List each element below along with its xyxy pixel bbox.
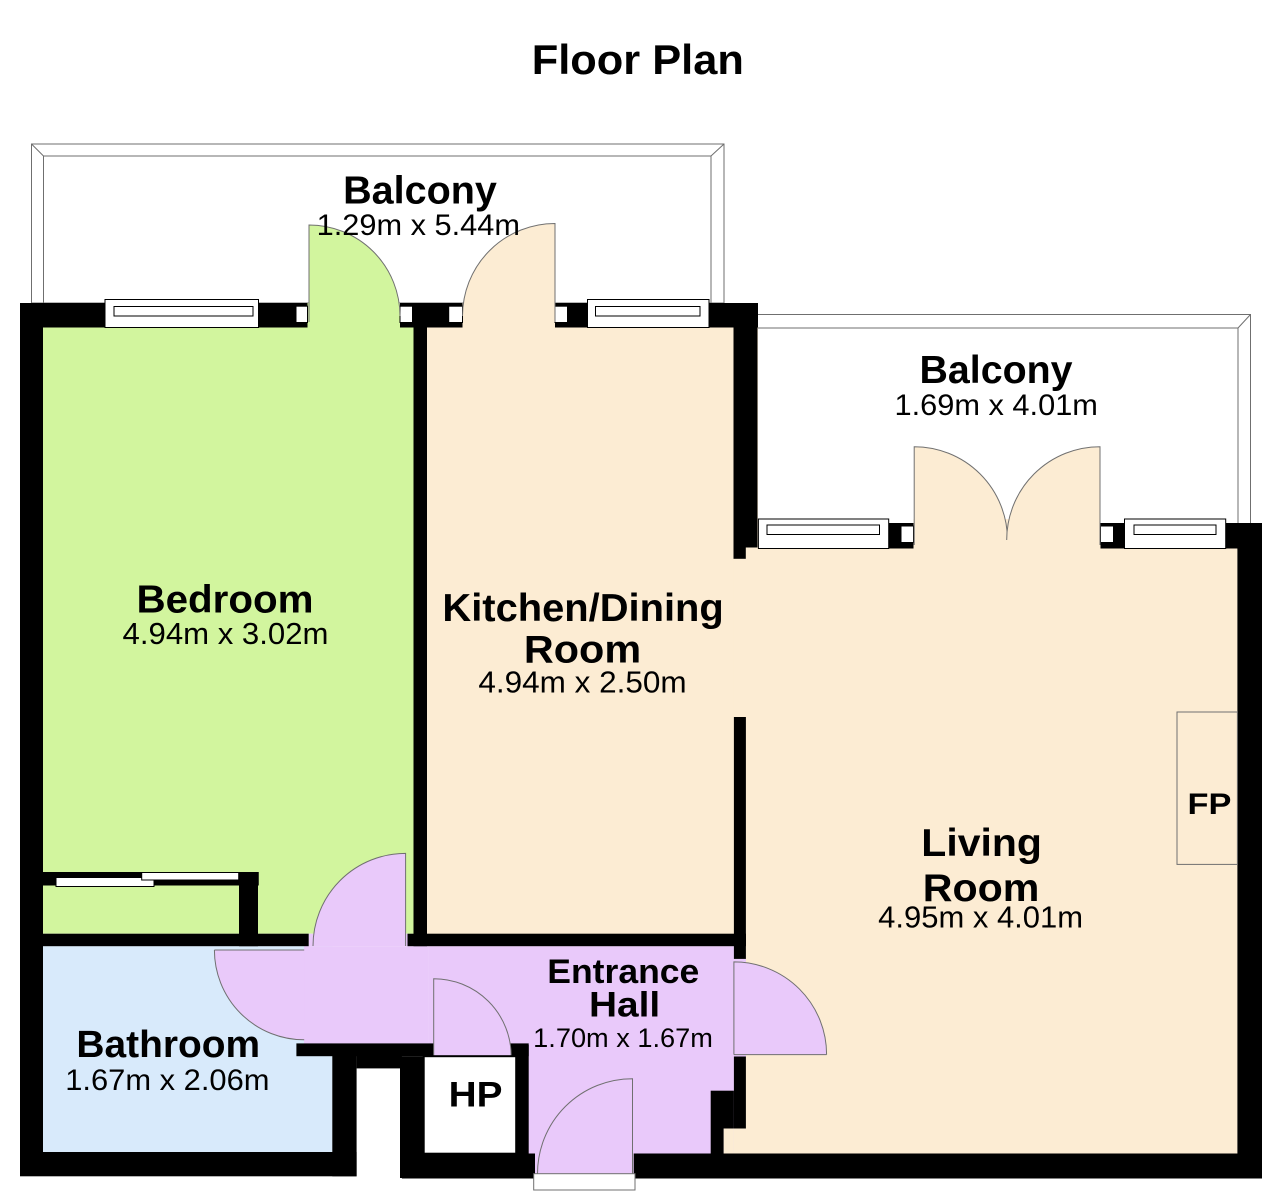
svg-text:Living: Living bbox=[921, 822, 1042, 865]
svg-text:1.70m x 1.67m: 1.70m x 1.67m bbox=[533, 1022, 713, 1053]
svg-text:Balcony: Balcony bbox=[343, 170, 497, 212]
svg-text:Bathroom: Bathroom bbox=[76, 1023, 260, 1065]
svg-text:1.67m x 2.06m: 1.67m x 2.06m bbox=[65, 1063, 269, 1096]
svg-text:Hall: Hall bbox=[589, 985, 660, 1024]
svg-text:1.29m x 5.44m: 1.29m x 5.44m bbox=[317, 209, 520, 242]
svg-text:1.69m x 4.01m: 1.69m x 4.01m bbox=[894, 388, 1097, 422]
svg-text:HP: HP bbox=[449, 1075, 503, 1114]
svg-text:4.94m x 2.50m: 4.94m x 2.50m bbox=[478, 665, 686, 700]
svg-text:FP: FP bbox=[1188, 787, 1232, 820]
svg-text:Kitchen/Dining: Kitchen/Dining bbox=[442, 587, 723, 630]
svg-text:Balcony: Balcony bbox=[920, 349, 1073, 392]
svg-text:4.94m x 3.02m: 4.94m x 3.02m bbox=[123, 616, 329, 651]
svg-text:Bedroom: Bedroom bbox=[136, 578, 313, 621]
svg-text:4.95m x 4.01m: 4.95m x 4.01m bbox=[878, 900, 1083, 935]
svg-text:Floor Plan: Floor Plan bbox=[532, 37, 744, 84]
